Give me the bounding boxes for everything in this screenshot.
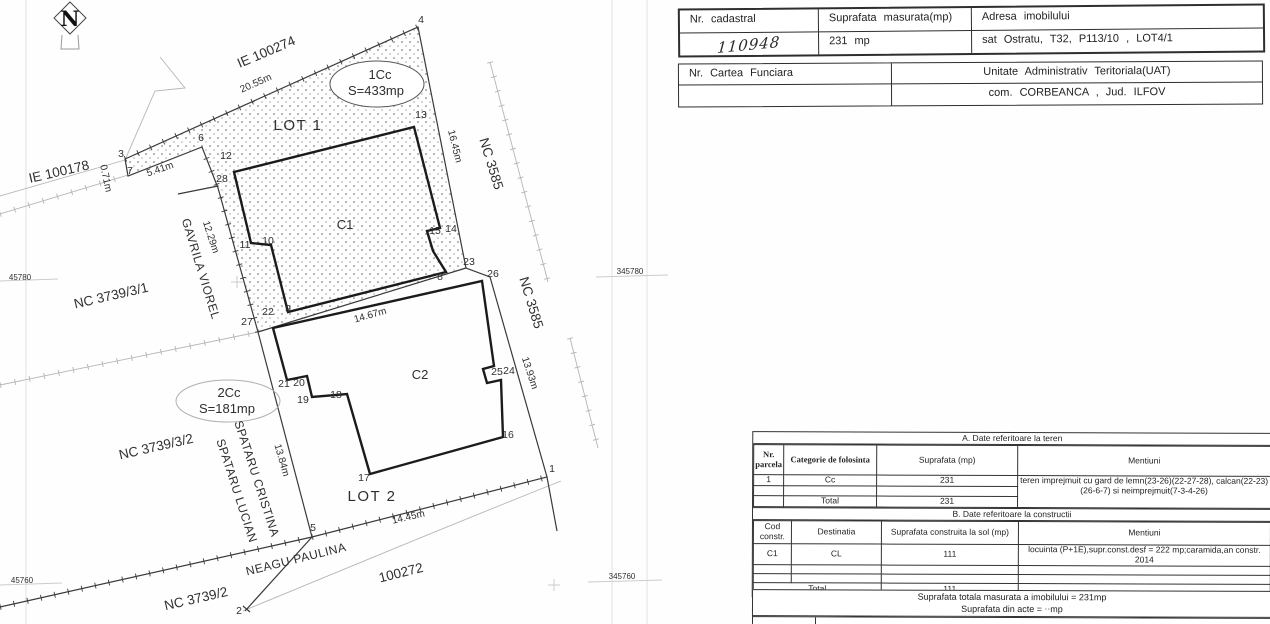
footer-acte-line: Suprafata din acte = ··mp [753,603,1270,617]
teren-constructii-table: A. Date referitoare la teren Nr. parcela… [752,431,1270,598]
constructii-row-cod: C1 [753,544,791,565]
handwritten-cadastral-number: 110948 [717,33,781,57]
total-area-footer: Suprafata totala masurata a imobilului =… [752,589,1270,618]
point-23: 23 [463,256,475,268]
point-20: 20 [293,377,305,389]
constructii-empty1-sup [881,565,1018,574]
point-27: 27 [241,316,253,328]
dim-right-lower: 13.93m [519,356,540,391]
parcel-100272-label: 100272 [377,560,424,585]
teren-table: Nr. parcela Categorie de folosinta Supra… [753,444,1270,509]
point-22: 22 [262,306,274,318]
constructii-col-destinatia: Destinatia [791,521,881,544]
point-16: 16 [502,429,514,441]
dim-top: 20.55m [239,72,274,96]
point-3: 3 [118,148,124,160]
next-table-cut-off [752,616,1270,624]
stub-line-28 [178,186,218,194]
constructii-col-suprafata: Suprafata construita la sol (mp) [881,521,1018,544]
point-28: 28 [216,173,228,185]
point-12: 12 [220,150,232,162]
point-4: 4 [418,14,424,26]
cadastral-document-page: 45780 45760 345780 345760 1Cc S=433mp [0,0,1270,624]
north-letter: N [60,6,79,31]
point-13: 13 [415,109,427,121]
lot2-code: 2Cc [217,385,241,400]
point-10: 10 [262,235,274,247]
point-7: 7 [127,165,133,177]
footer-acte-suffix: mp [1050,604,1063,614]
point-24: 24 [503,365,515,377]
parcel-nc3739-3-2-label: NC 3739/3/2 [117,431,194,463]
lot1-label: LOT 1 [274,117,323,134]
constructii-col-cod: Cod constr. [753,521,791,544]
header-adresa-imobilului: Adresa imobilului [972,5,1263,31]
owner-neagu-paulina: NEAGU PAULINA [244,540,347,578]
lot2-area: S=181mp [199,401,255,416]
point-25: 25 [491,366,503,378]
building-c1-label: C1 [337,217,354,232]
point-9: 9 [285,303,291,315]
value-adresa-imobilului: sat Ostratu, T32, P113/10 , LOT4/1 [972,28,1263,53]
constructii-col-mentiuni: Mentiuni [1018,522,1270,546]
parcel-nc3739-2-label: NC 3739/2 [163,584,229,613]
point-11: 11 [240,239,251,251]
grid-tick-lines [0,275,668,585]
value-carte-funciara [679,84,892,106]
cut-off-column-divider [815,617,816,624]
point-26: 26 [487,268,499,280]
constructii-empty1-cod [753,564,791,573]
teren-total-empty [754,496,784,507]
road-line-neagu [243,481,561,611]
point-17: 17 [358,472,370,484]
constructii-empty1-dest [791,564,881,573]
header-carte-funciara: Nr. Cartea Funciara [679,63,892,85]
point-14: 14 [445,223,457,235]
point-19: 19 [297,394,309,406]
header-nr-cadastral: Nr. cadastral [680,9,819,33]
cadastral-plan: 45780 45760 345780 345760 1Cc S=433mp [0,0,670,624]
point-15: 15 [429,225,441,237]
fence-nc3585-lower [570,338,598,448]
fence-gavrila-spataru [0,332,258,385]
teren-total-label: Total [784,496,877,507]
owner-gavrila-viorel: GAVRILA VIOREL [179,217,223,321]
building-c2-label: C2 [412,367,429,382]
constructii-empty2-sup [881,574,1018,583]
point-18: 18 [330,389,342,401]
teren-col-mentiuni: Mentiuni [1018,446,1270,477]
point-21: 21 [278,378,290,390]
lot2-label: LOT 2 [348,488,397,505]
constructii-row-destinatia: CL [791,544,881,565]
parcel-nc3739-3-1-label: NC 3739/3/1 [72,280,149,312]
value-uat: com. CORBEANCA , Jud. ILFOV [892,82,1262,105]
lot1-area: S=433mp [348,83,404,98]
lot1-code: 1Cc [368,67,392,82]
carte-funciara-table: Nr. Cartea Funciara Unitate Administrati… [678,60,1263,107]
parcel-ie100178-label: IE 100178 [27,157,90,185]
parcel-nc3585-upper-label: NC 3585 [476,136,506,191]
teren-col-nr-parcela: Nr. parcela [754,445,784,475]
site-plan-drawing: 45780 45760 345780 345760 1Cc S=433mp [0,0,670,624]
constructii-row-mentiuni: locuinta (P+1E),supr.const.desf = 222 mp… [1018,545,1270,566]
dim-corner: 0.71m [97,164,114,193]
value-nr-cadastral: 110948 [680,32,819,55]
teren-row-categorie: Cc [784,475,877,486]
teren-total-value: 231 [877,496,1018,507]
teren-empty-suprafata [877,486,1018,496]
grid-coord-left-top: 45780 [9,273,32,282]
point-2: 2 [236,605,242,617]
teren-row-suprafata: 231 [877,475,1018,486]
header-suprafata-masurata: Suprafata masurata(mp) [819,8,972,32]
grid-coord-left-bottom: 45760 [11,576,34,585]
teren-col-categorie: Categorie de folosinta [784,445,877,475]
point-6: 6 [198,132,204,144]
teren-empty-nr [754,486,784,496]
grid-coord-right-bottom: 345760 [609,572,636,581]
dim-right-upper: 16.45m [445,129,464,164]
constructii-empty2-dest [791,573,881,582]
teren-col-suprafata: Suprafata (mp) [877,445,1018,475]
teren-row-mentiuni: teren imprejmuit cu gard de lemn(23-26)(… [1018,476,1270,509]
footer-acte-prefix: Suprafata din acte = [961,603,1042,613]
dim-bottom: 14.45m [391,508,426,526]
north-arrow-base [61,35,79,49]
constructii-table: Cod constr. Destinatia Suprafata constru… [753,520,1270,597]
boundary-extension-right [547,477,557,531]
grid-coord-right-top: 345780 [617,267,644,276]
teren-empty-categorie [784,486,877,496]
parcel-nc3585-lower-label: NC 3585 [516,275,546,330]
cadastral-header-table: Nr. cadastral Suprafata masurata(mp) Adr… [678,3,1265,57]
parcel-ie100274-label: IE 100274 [235,33,298,71]
constructii-row-suprafata: 111 [881,544,1018,565]
point-5: 5 [310,522,316,534]
north-arrow-icon: N [54,2,86,49]
header-uat: Unitate Administrativ Teritoriala(UAT) [892,61,1262,84]
value-suprafata-masurata: 231 mp [819,31,972,54]
point-1: 1 [549,463,555,475]
constructii-empty2-cod [753,573,791,582]
point-8: 8 [437,271,443,283]
teren-row-nr: 1 [754,475,784,486]
